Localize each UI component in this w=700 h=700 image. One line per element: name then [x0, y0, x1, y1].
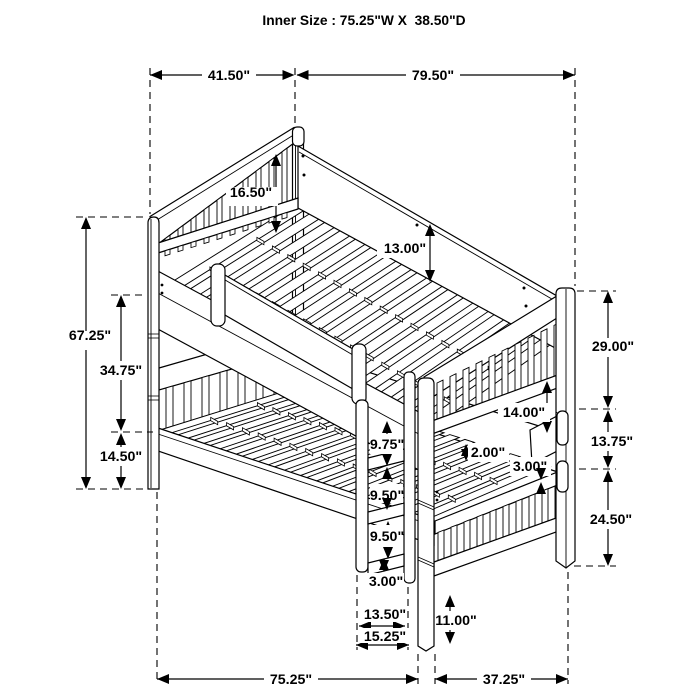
svg-text:14.00": 14.00" [503, 405, 545, 421]
svg-text:79.50": 79.50" [412, 68, 454, 84]
svg-text:13.00": 13.00" [384, 241, 426, 257]
svg-text:11.00": 11.00" [435, 613, 476, 629]
svg-text:75.25": 75.25" [270, 672, 312, 688]
svg-text:41.50": 41.50" [208, 68, 250, 84]
svg-text:24.50": 24.50" [590, 512, 632, 528]
svg-text:37.25": 37.25" [483, 672, 525, 688]
svg-text:13.50": 13.50" [364, 607, 406, 623]
svg-text:2.00": 2.00" [471, 445, 505, 461]
svg-text:15.25": 15.25" [364, 629, 406, 645]
svg-text:34.75": 34.75" [100, 363, 142, 379]
svg-text:9.75": 9.75" [370, 437, 404, 453]
svg-text:13.75": 13.75" [591, 434, 633, 450]
svg-text:29.00": 29.00" [592, 339, 634, 355]
svg-text:3.00": 3.00" [369, 574, 403, 590]
svg-text:16.50": 16.50" [230, 185, 272, 201]
svg-text:9.50": 9.50" [370, 529, 404, 545]
svg-text:Inner Size : 75.25"W X 38.50": Inner Size : 75.25"W X 38.50"D [262, 13, 465, 28]
svg-text:67.25": 67.25" [69, 328, 111, 344]
svg-text:14.50": 14.50" [100, 449, 142, 465]
